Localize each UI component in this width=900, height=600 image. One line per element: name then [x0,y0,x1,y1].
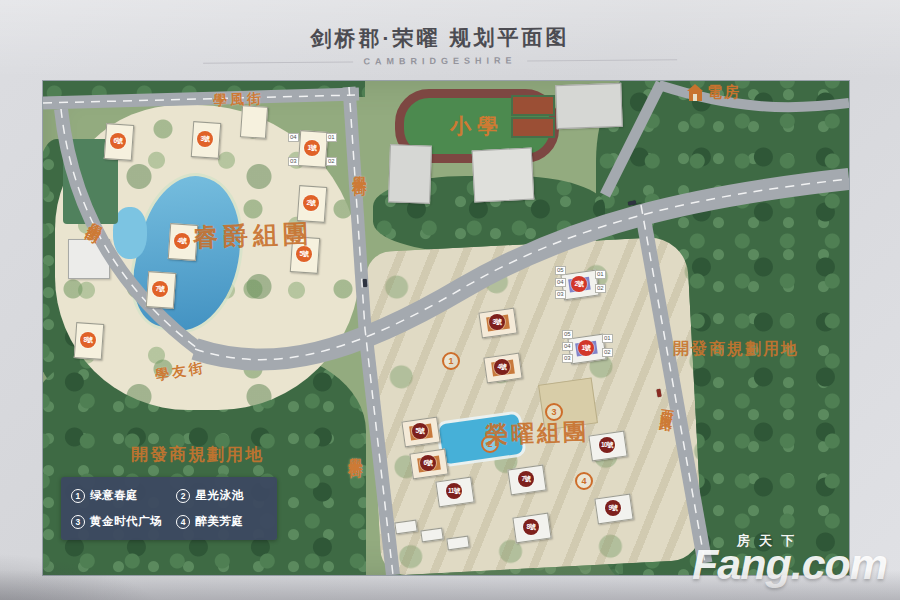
watermark-logo: Fang.com [692,540,887,589]
building-badge: 6號 [420,455,436,471]
building-badge: 10號 [599,437,615,453]
amenity-marker-1: 1 [442,352,460,370]
cluster-label-right: 榮曜組團 [484,416,589,451]
road-xuefeng [43,94,359,103]
amenity-marker-4: 4 [575,472,593,490]
house-icon [689,91,702,101]
street-label-xihe-east: 西河東路 [658,398,677,412]
building-badge: 5號 [412,423,428,439]
unit-tag: 04 [562,342,573,351]
legend-item-4: 4 醉美芳庭 [176,514,267,529]
unit-tag: 01 [602,334,613,343]
power-house-label: 電房 [707,83,741,102]
unit-tag: 03 [562,354,573,363]
unit-tag: 04 [288,133,299,142]
dev-land-label-left: 開發商規劃用地 [131,443,264,466]
unit-tag: 01 [326,133,337,142]
legend-item-3: 3 黄金时代广场 [71,514,172,529]
unit-tag: 02 [602,348,613,357]
street-label-xuelin-upper: 學林街 [351,165,369,174]
subtitle-rule-left [204,61,354,63]
legend-item-1: 1 绿意春庭 [71,488,172,503]
unit-tag: 03 [555,290,566,299]
unit-tag: 01 [595,270,606,279]
building-badge: 4號 [494,359,510,375]
dev-land-label-right: 開發商規劃用地 [673,339,799,360]
building-badge: 8號 [523,519,539,535]
street-label-xuefeng: 學風街 [213,90,265,110]
unit-tag: 04 [555,278,566,287]
building-badge: 2號 [571,276,587,292]
car-icon [363,279,368,287]
building-badge: 6號 [110,133,126,149]
legend-num-1: 1 [71,489,85,503]
legend-num-3: 3 [71,515,85,529]
page-title: 剑桥郡·荣曜 规划平面图 [0,21,880,55]
legend-label-1: 绿意春庭 [90,488,138,503]
building-block [240,105,268,139]
legend-num-2: 2 [176,489,190,503]
subtitle-rule-right [527,59,677,61]
unit-tag: 02 [326,157,337,166]
building-badge: 3號 [197,131,213,147]
building-badge: 2號 [303,195,319,211]
building-badge: 8號 [80,332,96,348]
power-house-callout: 電房 [689,83,741,102]
building-badge: 11號 [446,483,462,499]
legend-label-2: 星光泳池 [195,488,243,503]
legend-box: 1 绿意春庭 2 星光泳池 3 黄金时代广场 4 醉美芳庭 [61,477,277,540]
unit-tag: 05 [555,266,566,275]
photo-corner-shadow [0,552,170,600]
legend-num-4: 4 [176,515,190,529]
building-badge: 9號 [605,500,621,516]
unit-tag: 03 [288,157,299,166]
building-badge: 4號 [174,233,190,249]
building-badge: 7號 [152,281,168,297]
page-subtitle: CAMBRIDGESHIRE [364,55,517,66]
unit-tag: 05 [562,330,573,339]
road-branch-topright [605,83,661,195]
title-block: 剑桥郡·荣曜 规划平面图 CAMBRIDGESHIRE [0,21,880,69]
site-plan-map: 小學 [42,80,850,576]
photo-of-plan-board: 剑桥郡·荣曜 规划平面图 CAMBRIDGESHIRE 小學 [0,0,900,600]
legend-label-4: 醉美芳庭 [195,514,243,529]
legend-item-2: 2 星光泳池 [176,488,267,503]
unit-tag: 02 [595,284,606,293]
building-badge: 1號 [304,140,320,156]
street-label-xuelin-lower: 學林街 [347,447,365,456]
legend-label-3: 黄金时代广场 [90,514,162,529]
cluster-label-left: 睿爵組團 [192,217,313,254]
building-badge: 7號 [518,471,534,487]
building-badge: 3號 [489,314,505,330]
subtitle-row: CAMBRIDGESHIRE [0,53,880,69]
building-badge: 1號 [578,340,594,356]
